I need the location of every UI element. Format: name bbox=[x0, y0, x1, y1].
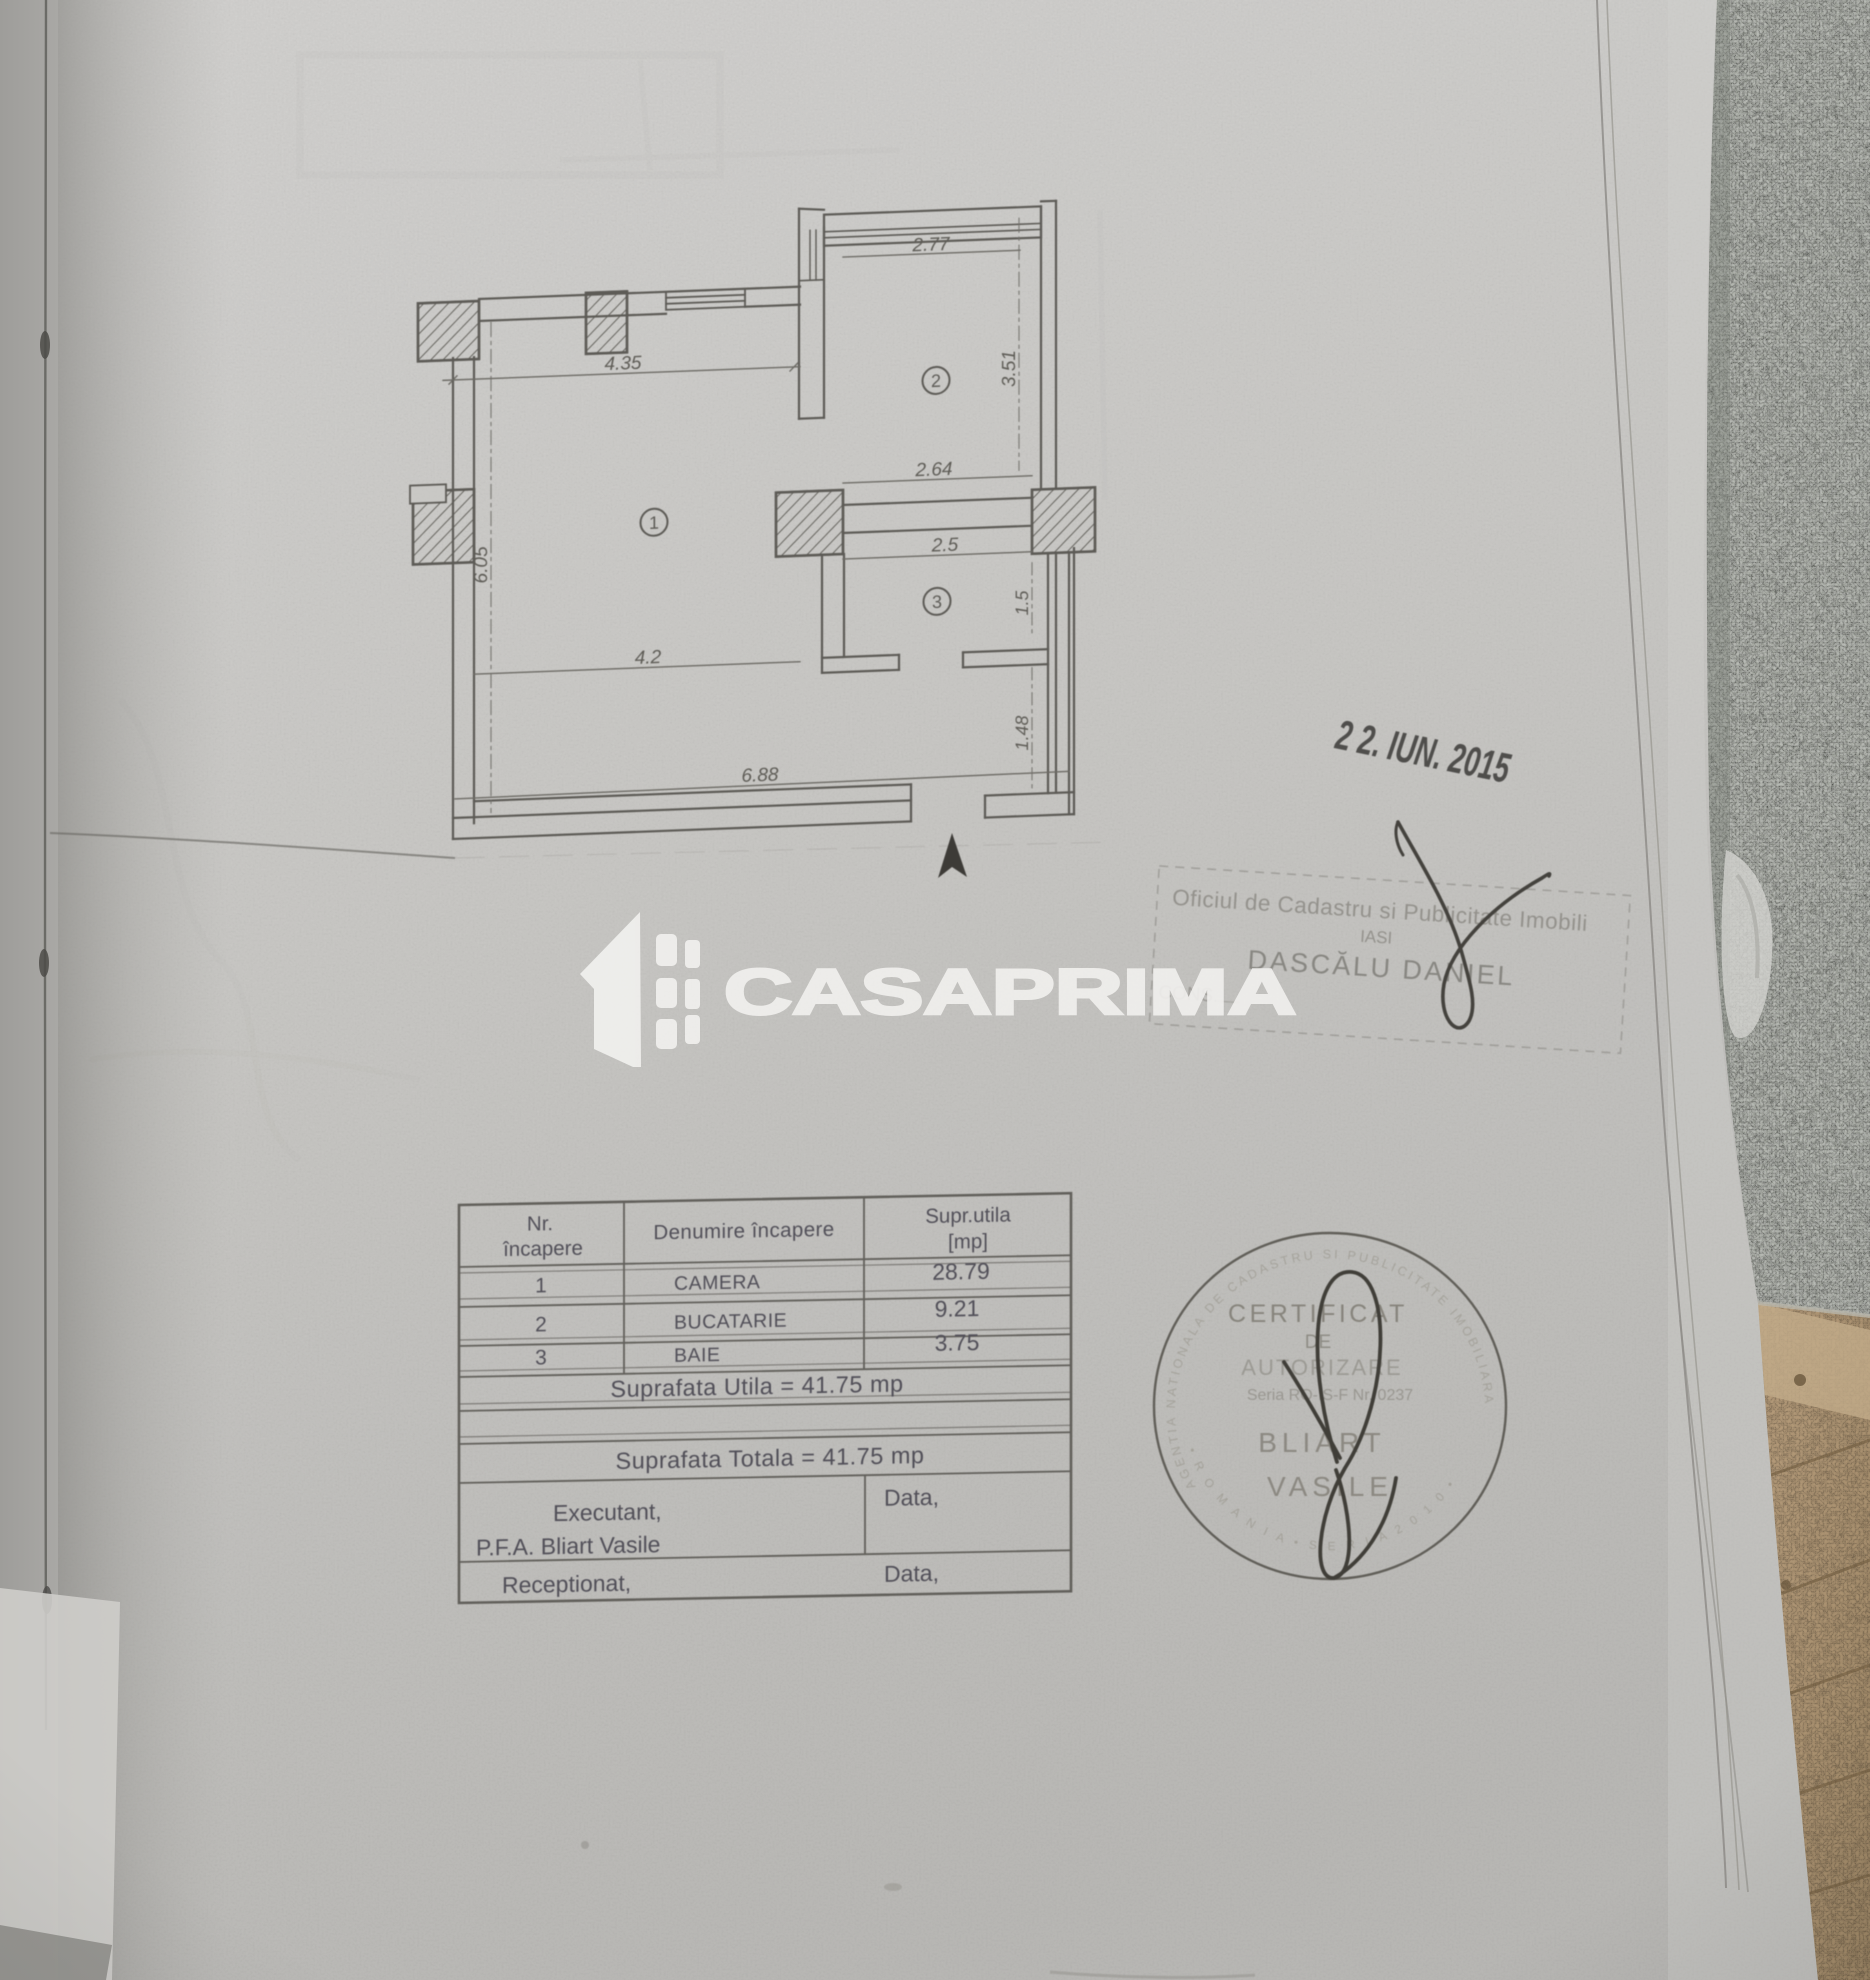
svg-text:CASAPRIMA: CASAPRIMA bbox=[724, 956, 1296, 1028]
